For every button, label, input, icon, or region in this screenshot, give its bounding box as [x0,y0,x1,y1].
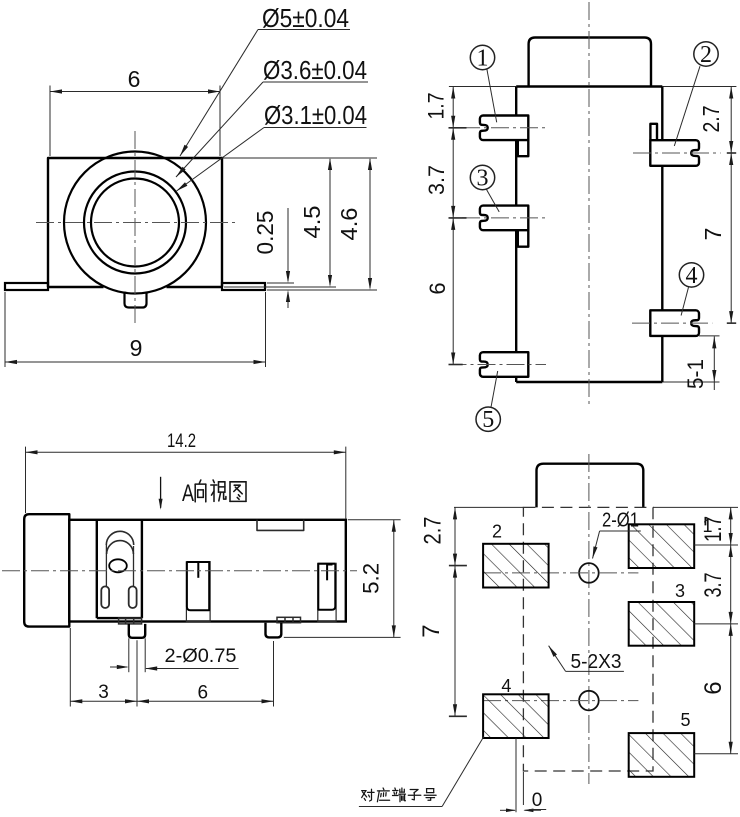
svg-text:5: 5 [482,407,494,433]
svg-text:5-2X3: 5-2X3 [571,651,622,673]
svg-text:3: 3 [477,166,489,192]
svg-text:1.7: 1.7 [700,516,727,542]
svg-text:5-1: 5-1 [683,359,708,389]
svg-text:4.5: 4.5 [299,206,325,239]
svg-text:6: 6 [700,681,727,694]
svg-text:5.2: 5.2 [359,563,384,594]
svg-text:0.25: 0.25 [252,211,278,255]
svg-text:1.7: 1.7 [424,93,449,120]
svg-text:2: 2 [700,42,712,68]
svg-text:Ø3.1±0.04: Ø3.1±0.04 [264,100,367,130]
svg-text:0: 0 [532,790,543,811]
svg-text:2-Ø1: 2-Ø1 [602,510,639,532]
svg-text:7: 7 [418,624,445,637]
svg-text:4: 4 [501,676,511,696]
svg-text:2: 2 [492,522,502,542]
svg-text:9: 9 [130,335,143,361]
svg-text:7: 7 [700,228,726,241]
svg-text:6: 6 [425,282,450,294]
svg-text:3: 3 [98,682,109,703]
svg-text:Ø3.6±0.04: Ø3.6±0.04 [263,55,367,85]
svg-text:2.7: 2.7 [420,517,447,545]
svg-text:A: A [182,480,194,507]
svg-text:3.7: 3.7 [700,573,727,598]
svg-text:Ø5±0.04: Ø5±0.04 [262,3,349,33]
svg-text:6: 6 [198,683,209,704]
svg-text:14.2: 14.2 [167,431,196,452]
svg-text:2.7: 2.7 [698,106,724,133]
svg-text:6: 6 [128,66,141,92]
svg-text:1: 1 [477,46,489,72]
svg-text:4: 4 [686,263,698,289]
svg-text:3: 3 [675,581,685,601]
svg-text:4.6: 4.6 [336,208,362,241]
svg-text:5: 5 [680,710,690,730]
svg-text:2-Ø0.75: 2-Ø0.75 [165,646,237,667]
svg-text:3.7: 3.7 [424,165,449,195]
